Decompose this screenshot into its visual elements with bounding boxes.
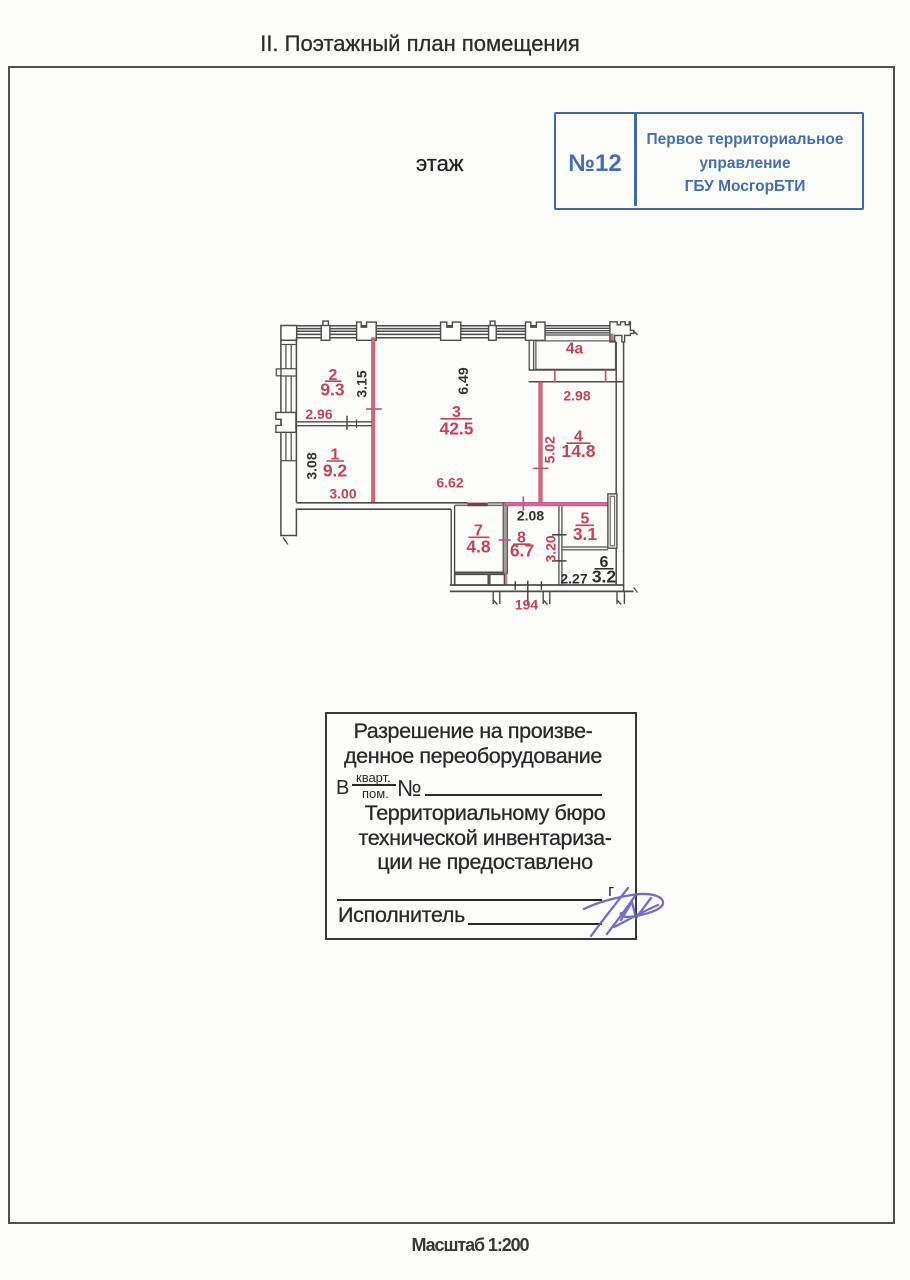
svg-text:9.2: 9.2 — [323, 461, 348, 481]
svg-text:6.7: 6.7 — [510, 541, 534, 561]
svg-text:3.2: 3.2 — [592, 567, 617, 587]
svg-text:4а: 4а — [566, 341, 584, 358]
svg-text:4.8: 4.8 — [466, 537, 491, 557]
svg-text:2.96: 2.96 — [305, 406, 332, 422]
svg-text:2.08: 2.08 — [517, 508, 544, 524]
svg-text:3.15: 3.15 — [354, 370, 370, 397]
svg-text:9.3: 9.3 — [320, 380, 345, 400]
svg-text:194: 194 — [515, 597, 539, 613]
svg-text:3.20: 3.20 — [542, 535, 558, 562]
svg-text:2.27: 2.27 — [560, 571, 587, 587]
svg-text:3.08: 3.08 — [304, 452, 320, 479]
svg-text:42.5: 42.5 — [439, 419, 473, 439]
svg-text:14.8: 14.8 — [561, 441, 595, 461]
svg-text:6.49: 6.49 — [455, 367, 471, 394]
svg-text:3.1: 3.1 — [573, 524, 598, 544]
svg-text:6.62: 6.62 — [436, 475, 463, 491]
svg-text:2.98: 2.98 — [563, 388, 590, 404]
svg-text:5.02: 5.02 — [541, 436, 557, 463]
svg-text:3.00: 3.00 — [329, 486, 356, 502]
